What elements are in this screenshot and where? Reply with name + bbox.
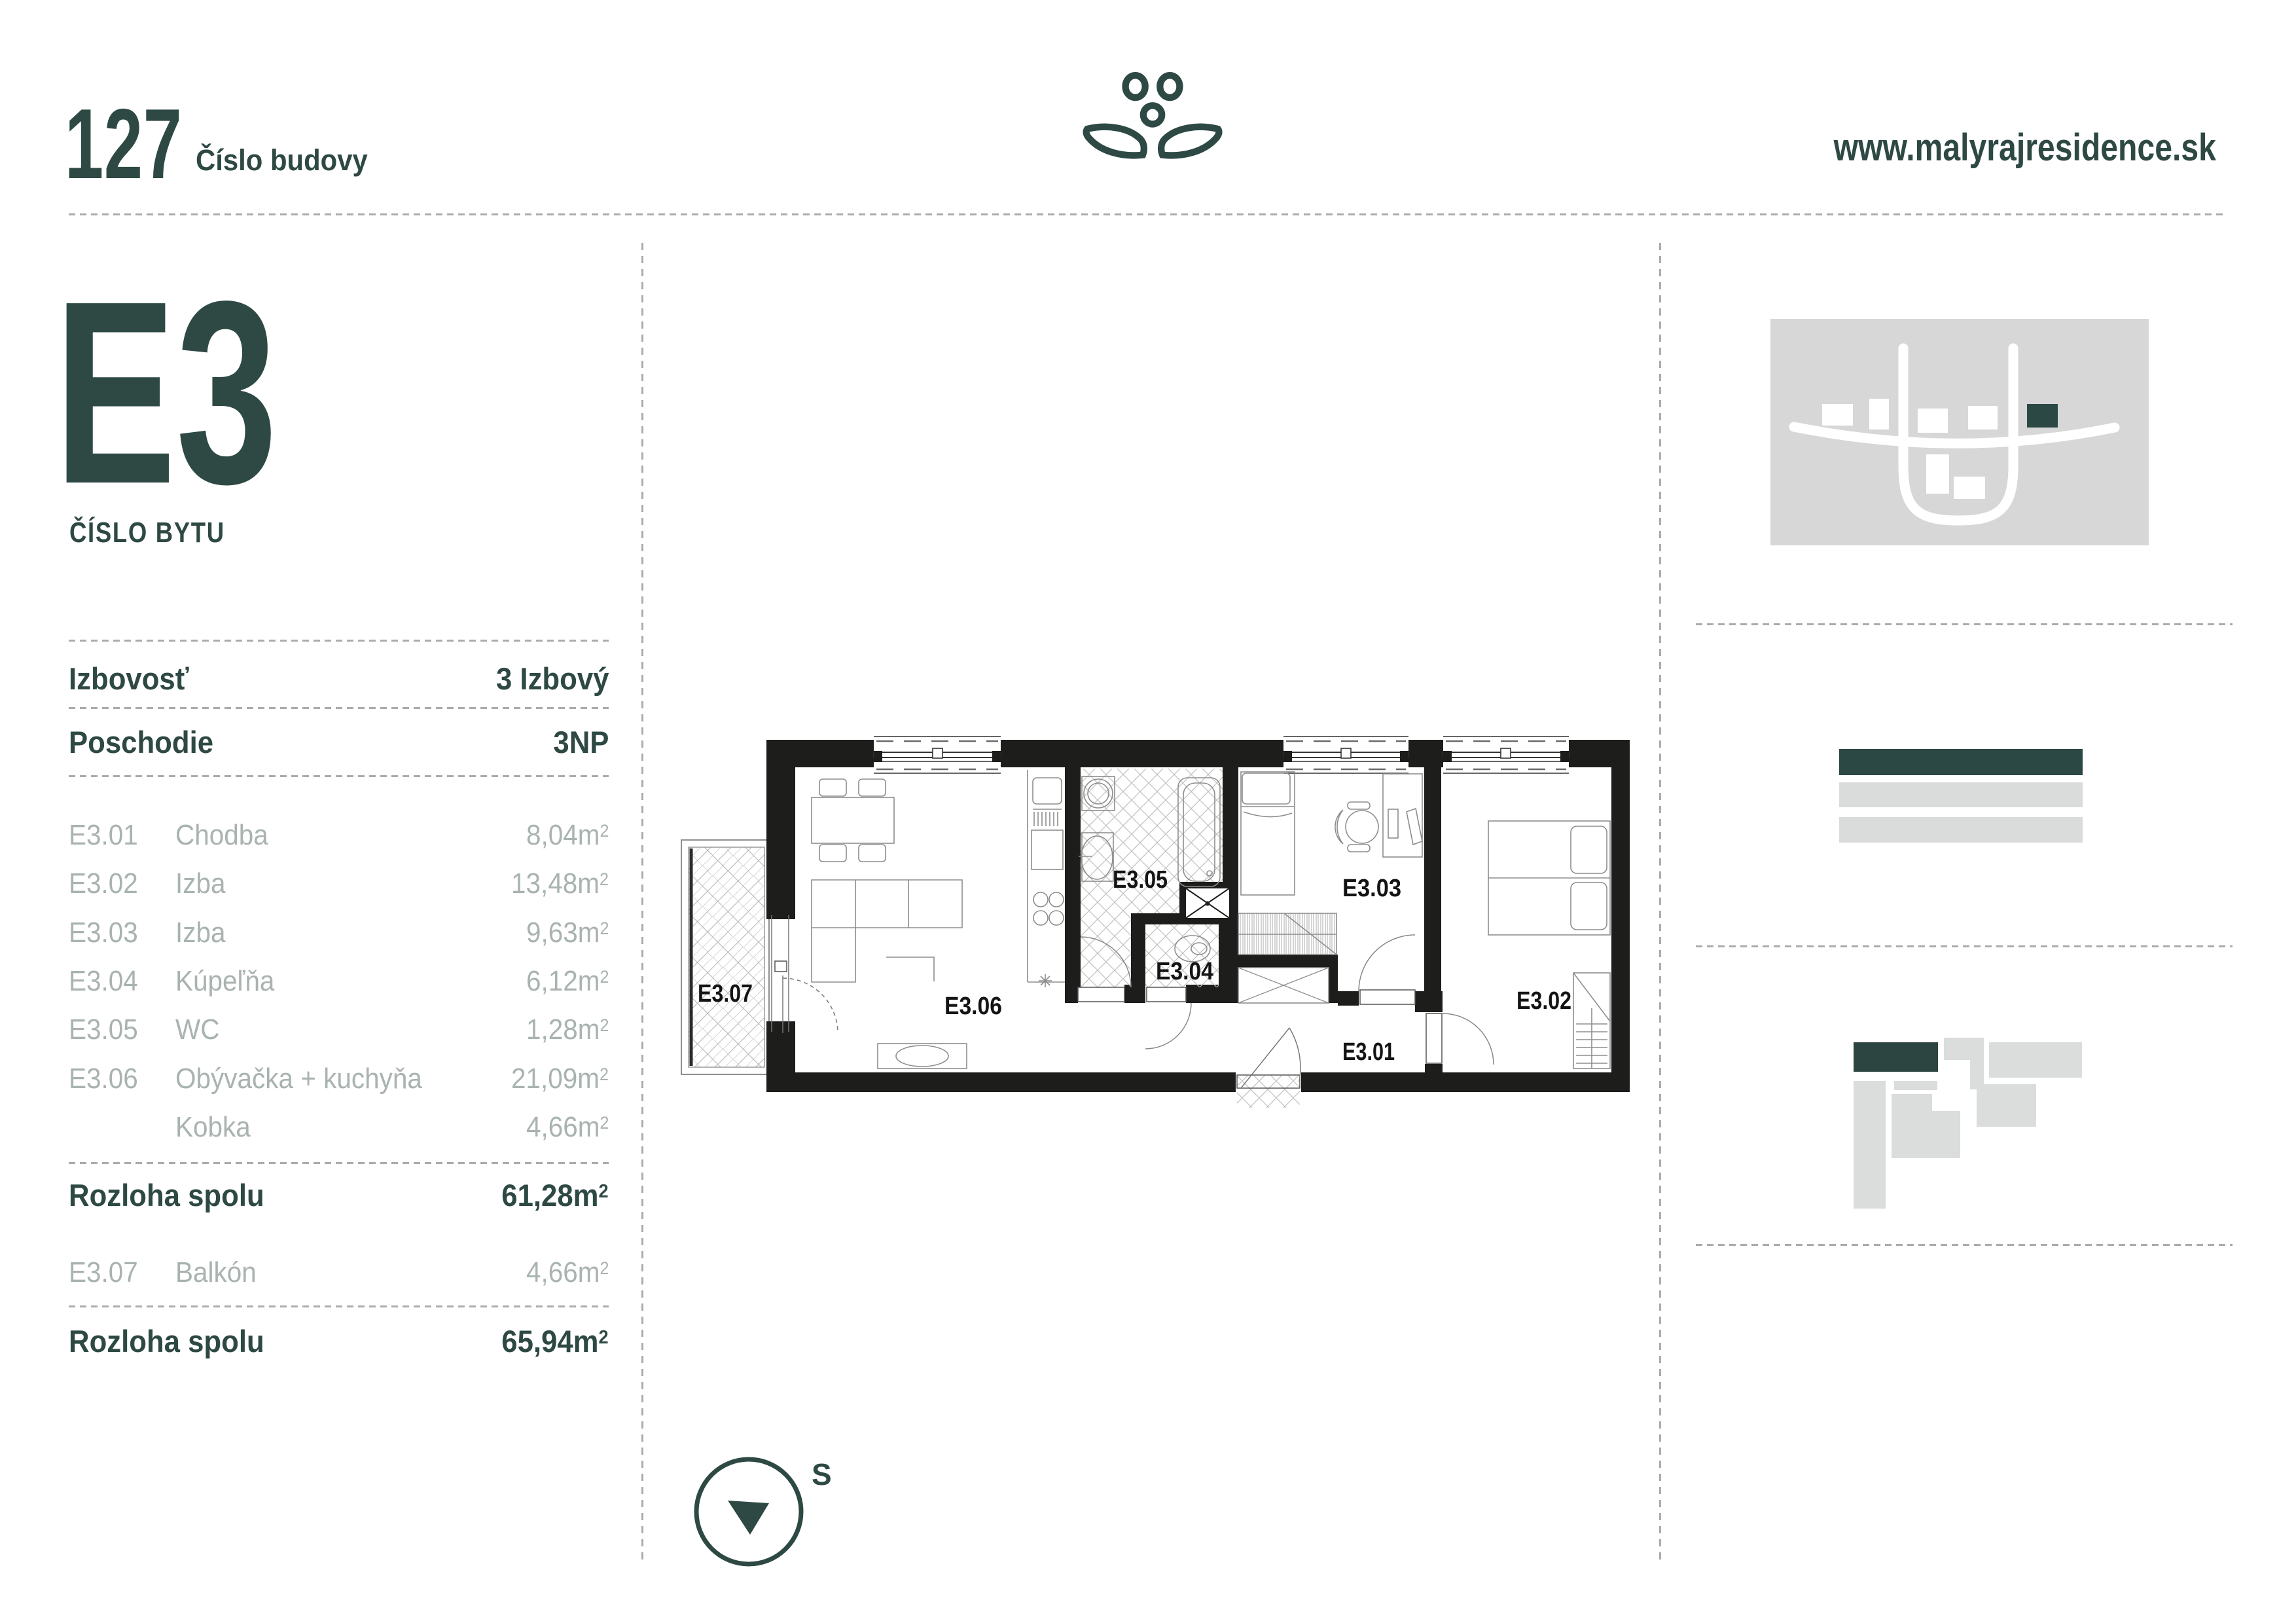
svg-text:E3.05: E3.05 bbox=[1113, 866, 1168, 894]
svg-text:E3.06: E3.06 bbox=[944, 993, 1002, 1020]
svg-text:E3.02: E3.02 bbox=[1516, 987, 1571, 1015]
svg-text:E3.03: E3.03 bbox=[1342, 875, 1401, 902]
svg-text:E3.07: E3.07 bbox=[698, 980, 753, 1008]
svg-text:S: S bbox=[812, 1457, 832, 1491]
svg-text:E3.04: E3.04 bbox=[1156, 958, 1213, 985]
svg-text:E3.01: E3.01 bbox=[1342, 1038, 1395, 1066]
